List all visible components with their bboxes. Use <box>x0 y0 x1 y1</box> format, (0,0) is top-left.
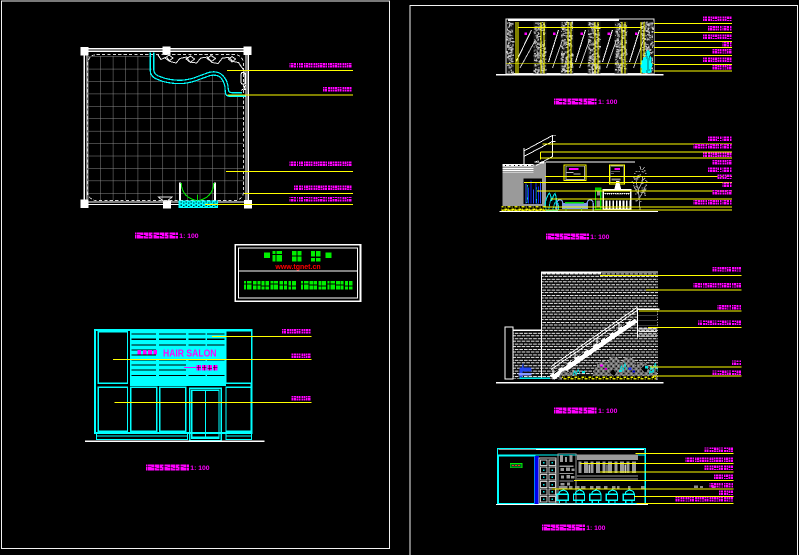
svg-text:1: 100: 1: 100 <box>586 525 605 532</box>
svg-text:1: 100: 1: 100 <box>598 408 617 415</box>
svg-text:www.tgnet.cn: www.tgnet.cn <box>274 264 320 271</box>
svg-text:HAIR SALON: HAIR SALON <box>163 349 217 360</box>
svg-text:1: 100: 1: 100 <box>590 234 609 241</box>
svg-text:1: 100: 1: 100 <box>598 99 617 106</box>
svg-text:1: 100: 1: 100 <box>190 465 209 472</box>
svg-text:1: 100: 1: 100 <box>179 233 198 240</box>
